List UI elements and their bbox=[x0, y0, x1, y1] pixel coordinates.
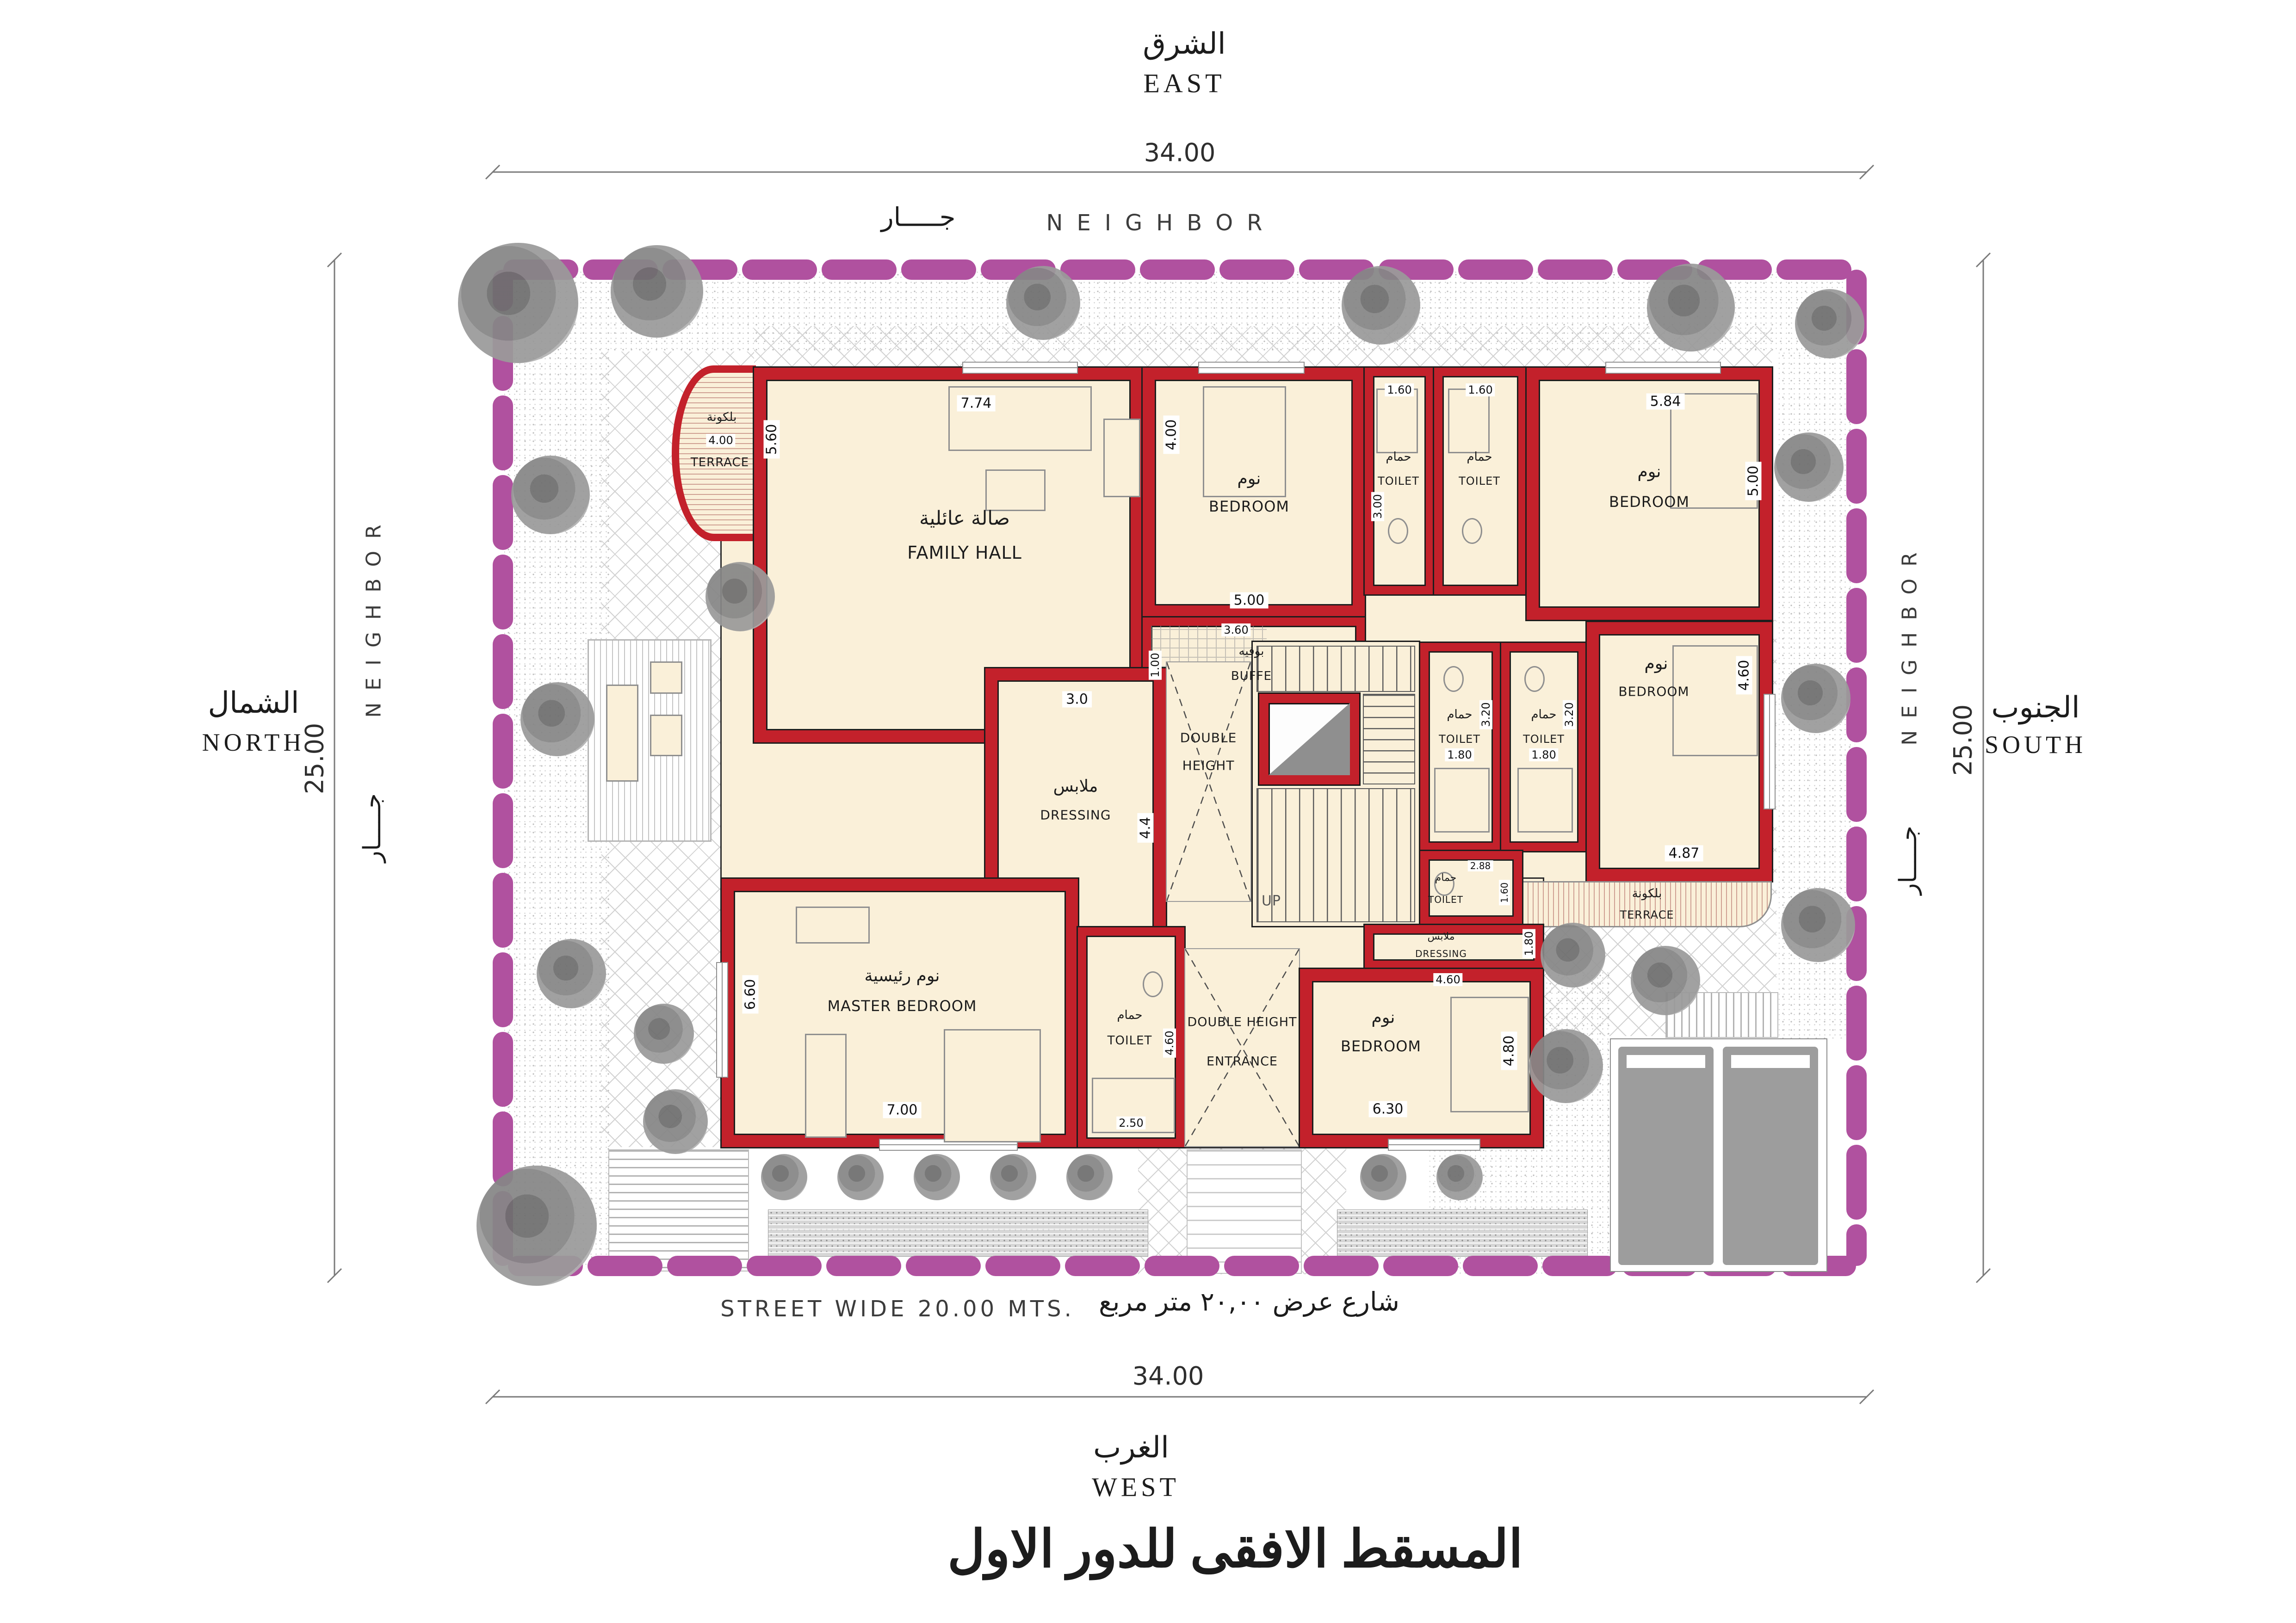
toilet-master-label: TOILET bbox=[1108, 1034, 1152, 1048]
toilet-top-1-dim-h: 3.00 bbox=[1371, 492, 1384, 521]
east-label-arabic: الشرق bbox=[1143, 27, 1225, 61]
bedroom-right-label-ar: نوم bbox=[1645, 654, 1668, 673]
floor-plan-page: { "palette":{"wall_red":"#c3212b","bound… bbox=[0, 0, 2296, 1623]
buffe-dim-w: 3.60 bbox=[1221, 623, 1250, 636]
bedroom-right-dim-w: 4.87 bbox=[1665, 845, 1703, 862]
toilet-mid-2-label: TOILET bbox=[1523, 733, 1565, 746]
toilet-master-dim-h: 4.60 bbox=[1163, 1028, 1176, 1057]
tree bbox=[611, 245, 703, 338]
bed-bedroom-bottom bbox=[1450, 997, 1529, 1112]
double-height-void bbox=[1166, 661, 1251, 902]
toilet-top-2-dim-w: 1.60 bbox=[1466, 383, 1495, 396]
toilet-mid-2-label-ar: حمام bbox=[1531, 708, 1556, 722]
bush bbox=[990, 1154, 1036, 1200]
tree bbox=[1006, 266, 1080, 340]
bedroom-right-dim-h: 4.60 bbox=[1736, 656, 1752, 695]
dressing-right-dim-h: 1.80 bbox=[1522, 929, 1535, 958]
north-label: NORTH bbox=[202, 728, 305, 757]
bedroom-bottom-dim-h: 4.80 bbox=[1501, 1032, 1517, 1070]
entrance-void bbox=[1184, 948, 1300, 1147]
garage bbox=[1610, 1038, 1827, 1272]
tub-toilet-top-2 bbox=[1448, 389, 1490, 453]
toilet-master-label-ar: حمام bbox=[1117, 1008, 1142, 1022]
basin-toilet-mid-1 bbox=[1443, 666, 1464, 692]
wardrobe-master-bedroom bbox=[796, 907, 870, 944]
terrace-main-label-ar: بلكونة bbox=[707, 410, 737, 424]
bedroom-bottom-dim-w: 6.30 bbox=[1369, 1101, 1407, 1117]
toilet-master-dim-w: 2.50 bbox=[1116, 1117, 1145, 1129]
window-master-west bbox=[716, 962, 728, 1078]
terrace-right-label-ar: بلكونة bbox=[1632, 887, 1662, 901]
armchair-family-hall bbox=[1103, 419, 1140, 497]
elevator-symbol bbox=[1269, 703, 1350, 775]
bedroom-right-label: BEDROOM bbox=[1618, 684, 1689, 699]
west-label-arabic: الغرب bbox=[1093, 1431, 1169, 1465]
stairs-upper-flight bbox=[1256, 646, 1415, 692]
room-terrace-main bbox=[672, 365, 756, 541]
tree bbox=[1781, 888, 1855, 962]
toilet-mid-2-dim-h: 3.20 bbox=[1563, 700, 1576, 729]
toilet-mid-1-label-ar: حمام bbox=[1447, 708, 1472, 722]
dressing-left-dim-h: 4.4 bbox=[1138, 813, 1154, 843]
family-hall-label-ar: صالة عائلية bbox=[919, 507, 1010, 530]
tree bbox=[643, 1089, 708, 1154]
deck-sofa bbox=[606, 685, 638, 782]
tree bbox=[1529, 1029, 1603, 1103]
bedroom-top-right-dim-w: 5.84 bbox=[1646, 394, 1685, 410]
dim-right-25: 25.00 bbox=[1949, 700, 1978, 781]
tree bbox=[1631, 946, 1700, 1015]
master-bedroom-label: MASTER BEDROOM bbox=[827, 997, 977, 1015]
bush bbox=[1066, 1154, 1113, 1200]
tree bbox=[537, 939, 606, 1008]
dressing-left-label: DRESSING bbox=[1040, 808, 1111, 823]
toilet-small-label-ar: حمام bbox=[1435, 872, 1457, 884]
buffe-label: BUFFE bbox=[1231, 669, 1272, 683]
window-bedroom-top-left bbox=[1198, 362, 1305, 374]
master-bedroom-dim-h: 6.60 bbox=[743, 975, 759, 1014]
basin-toilet-master bbox=[1143, 971, 1163, 997]
bed-master-bedroom bbox=[944, 1029, 1041, 1142]
deck-table bbox=[650, 715, 682, 756]
terrace-right-label: TERRACE bbox=[1620, 908, 1674, 921]
south-label: SOUTH bbox=[1985, 730, 2086, 759]
toilet-small-dim-h: 1.60 bbox=[1499, 880, 1510, 906]
deck-chair bbox=[650, 661, 682, 694]
basin-toilet-top-2 bbox=[1462, 518, 1482, 544]
tree bbox=[520, 682, 594, 756]
family-hall-label: FAMILY HALL bbox=[907, 543, 1022, 563]
dressing-left-label-ar: ملابس bbox=[1053, 777, 1098, 796]
sofa-master-bedroom bbox=[805, 1034, 847, 1138]
north-label-arabic: الشمال bbox=[208, 686, 299, 720]
tree bbox=[706, 562, 775, 631]
bedroom-top-left-label: BEDROOM bbox=[1209, 498, 1289, 515]
tree bbox=[1541, 923, 1605, 987]
tree bbox=[511, 456, 590, 534]
staircase-block bbox=[1251, 641, 1420, 927]
bush bbox=[1360, 1154, 1406, 1200]
toilet-mid-1-label: TOILET bbox=[1439, 733, 1480, 746]
family-hall-dim-w: 7.74 bbox=[957, 395, 996, 412]
bedroom-bottom-label-ar: نوم bbox=[1372, 1008, 1395, 1027]
toilet-mid-2-dim-w: 1.80 bbox=[1529, 748, 1558, 761]
master-bedroom-dim-w: 7.00 bbox=[883, 1102, 922, 1118]
window-bedroom-right bbox=[1764, 694, 1776, 809]
basin-toilet-mid-2 bbox=[1524, 666, 1545, 692]
bush bbox=[761, 1154, 807, 1200]
tree bbox=[1647, 264, 1735, 352]
bush bbox=[1436, 1154, 1483, 1200]
neighbor-left-label: NEIGHBOR bbox=[362, 512, 386, 718]
entrance-label-1: DOUBLE HEIGHT bbox=[1187, 1015, 1297, 1030]
double-height-label-2: HEIGHT bbox=[1182, 758, 1235, 773]
bed-bedroom-top-right bbox=[1670, 393, 1758, 509]
master-bedroom-label-ar: نوم رئيسية bbox=[865, 967, 940, 986]
garage-door-2 bbox=[1731, 1055, 1810, 1068]
tree bbox=[477, 1166, 597, 1286]
tree bbox=[634, 1004, 694, 1064]
family-hall-dim-h: 5.60 bbox=[764, 420, 780, 459]
neighbor-right-label: NEIGHBOR bbox=[1898, 540, 1922, 746]
toilet-top-1-label: TOILET bbox=[1378, 475, 1419, 488]
toilet-top-2-label: TOILET bbox=[1459, 475, 1500, 488]
tree bbox=[1795, 289, 1864, 358]
bedroom-top-left-label-ar: نوم bbox=[1238, 469, 1261, 488]
toilet-mid-1-dim-w: 1.80 bbox=[1445, 748, 1474, 761]
terrace-main-dim: 4.00 bbox=[706, 434, 735, 447]
terrace-main-label: TERRACE bbox=[691, 456, 749, 469]
buffe-dim-h: 1.00 bbox=[1149, 650, 1162, 679]
street-label: STREET WIDE 20.00 MTS. bbox=[720, 1296, 1075, 1322]
bedroom-top-left-dim-w: 5.00 bbox=[1230, 592, 1269, 609]
toilet-mid-1-dim-h: 3.20 bbox=[1479, 700, 1492, 729]
tree bbox=[1342, 266, 1420, 345]
bedroom-bottom-label: BEDROOM bbox=[1341, 1037, 1421, 1055]
neighbor-left-arabic: جـــــار bbox=[359, 793, 386, 862]
drawing-title: المسقط الافقى للدور الاول bbox=[947, 1519, 1523, 1580]
neighbor-right-arabic: جـــــار bbox=[1894, 826, 1922, 895]
stairs-up-label: UP bbox=[1262, 893, 1281, 909]
double-height-x bbox=[1167, 662, 1250, 901]
entrance-x bbox=[1185, 949, 1299, 1146]
west-label: WEST bbox=[1092, 1472, 1180, 1503]
basin-toilet-top-1 bbox=[1388, 518, 1408, 544]
toilet-top-1-label-ar: حمام bbox=[1386, 450, 1411, 464]
east-label: EAST bbox=[1144, 68, 1225, 99]
toilet-small-dim-w: 2.88 bbox=[1468, 860, 1493, 871]
buffe-label-ar: بوفيه bbox=[1239, 644, 1264, 658]
toilet-small-label: TOILET bbox=[1428, 894, 1463, 905]
elevator-shaft bbox=[1259, 694, 1359, 784]
dressing-right-label: DRESSING bbox=[1415, 948, 1467, 959]
tree bbox=[458, 243, 578, 363]
tree bbox=[1781, 664, 1850, 733]
bush bbox=[914, 1154, 960, 1200]
table-family-hall bbox=[985, 469, 1046, 511]
bedroom-top-right-label: BEDROOM bbox=[1609, 493, 1690, 511]
bedroom-top-right-label-ar: نوم bbox=[1638, 463, 1661, 481]
dressing-right-dim-w: 4.60 bbox=[1433, 973, 1462, 986]
tub-toilet-top-1 bbox=[1376, 389, 1418, 453]
toilet-top-1-dim-w: 1.60 bbox=[1385, 383, 1414, 396]
dim-bottom-34: 34.00 bbox=[1128, 1362, 1209, 1391]
bedroom-top-left-dim-h: 4.00 bbox=[1163, 416, 1180, 454]
double-height-label-1: DOUBLE bbox=[1180, 730, 1237, 746]
street-label-arabic: شارع عرض ٢٠,٠٠ متر مربع bbox=[1099, 1287, 1399, 1317]
tub-toilet-mid-1 bbox=[1434, 768, 1490, 833]
toilet-top-2-label-ar: حمام bbox=[1467, 450, 1492, 464]
stairs-mid-flight bbox=[1363, 694, 1415, 784]
window-bedroom-bottom bbox=[1388, 1139, 1480, 1151]
window-family-hall bbox=[962, 362, 1078, 374]
parking-stall-2 bbox=[1723, 1047, 1818, 1265]
dim-top-34: 34.00 bbox=[1139, 138, 1220, 167]
entrance-label-2: ENTRANCE bbox=[1207, 1055, 1278, 1069]
dressing-left-dim-w: 3.0 bbox=[1062, 691, 1092, 708]
window-bedroom-top-right bbox=[1605, 362, 1721, 374]
dim-left-25: 25.00 bbox=[300, 718, 329, 799]
dressing-right-label-ar: ملابس bbox=[1427, 931, 1454, 943]
tub-toilet-mid-2 bbox=[1517, 768, 1573, 833]
bush bbox=[837, 1154, 884, 1200]
bedroom-top-right-dim-h: 5.00 bbox=[1745, 462, 1762, 500]
south-label-arabic: الجنوب bbox=[1991, 691, 2079, 725]
tree bbox=[1774, 432, 1844, 502]
neighbor-top-arabic: جـــــار bbox=[881, 203, 956, 233]
garage-door-1 bbox=[1627, 1055, 1705, 1068]
neighbor-top-label: NEIGHBOR bbox=[1046, 210, 1276, 236]
parking-stall-1 bbox=[1618, 1047, 1714, 1265]
